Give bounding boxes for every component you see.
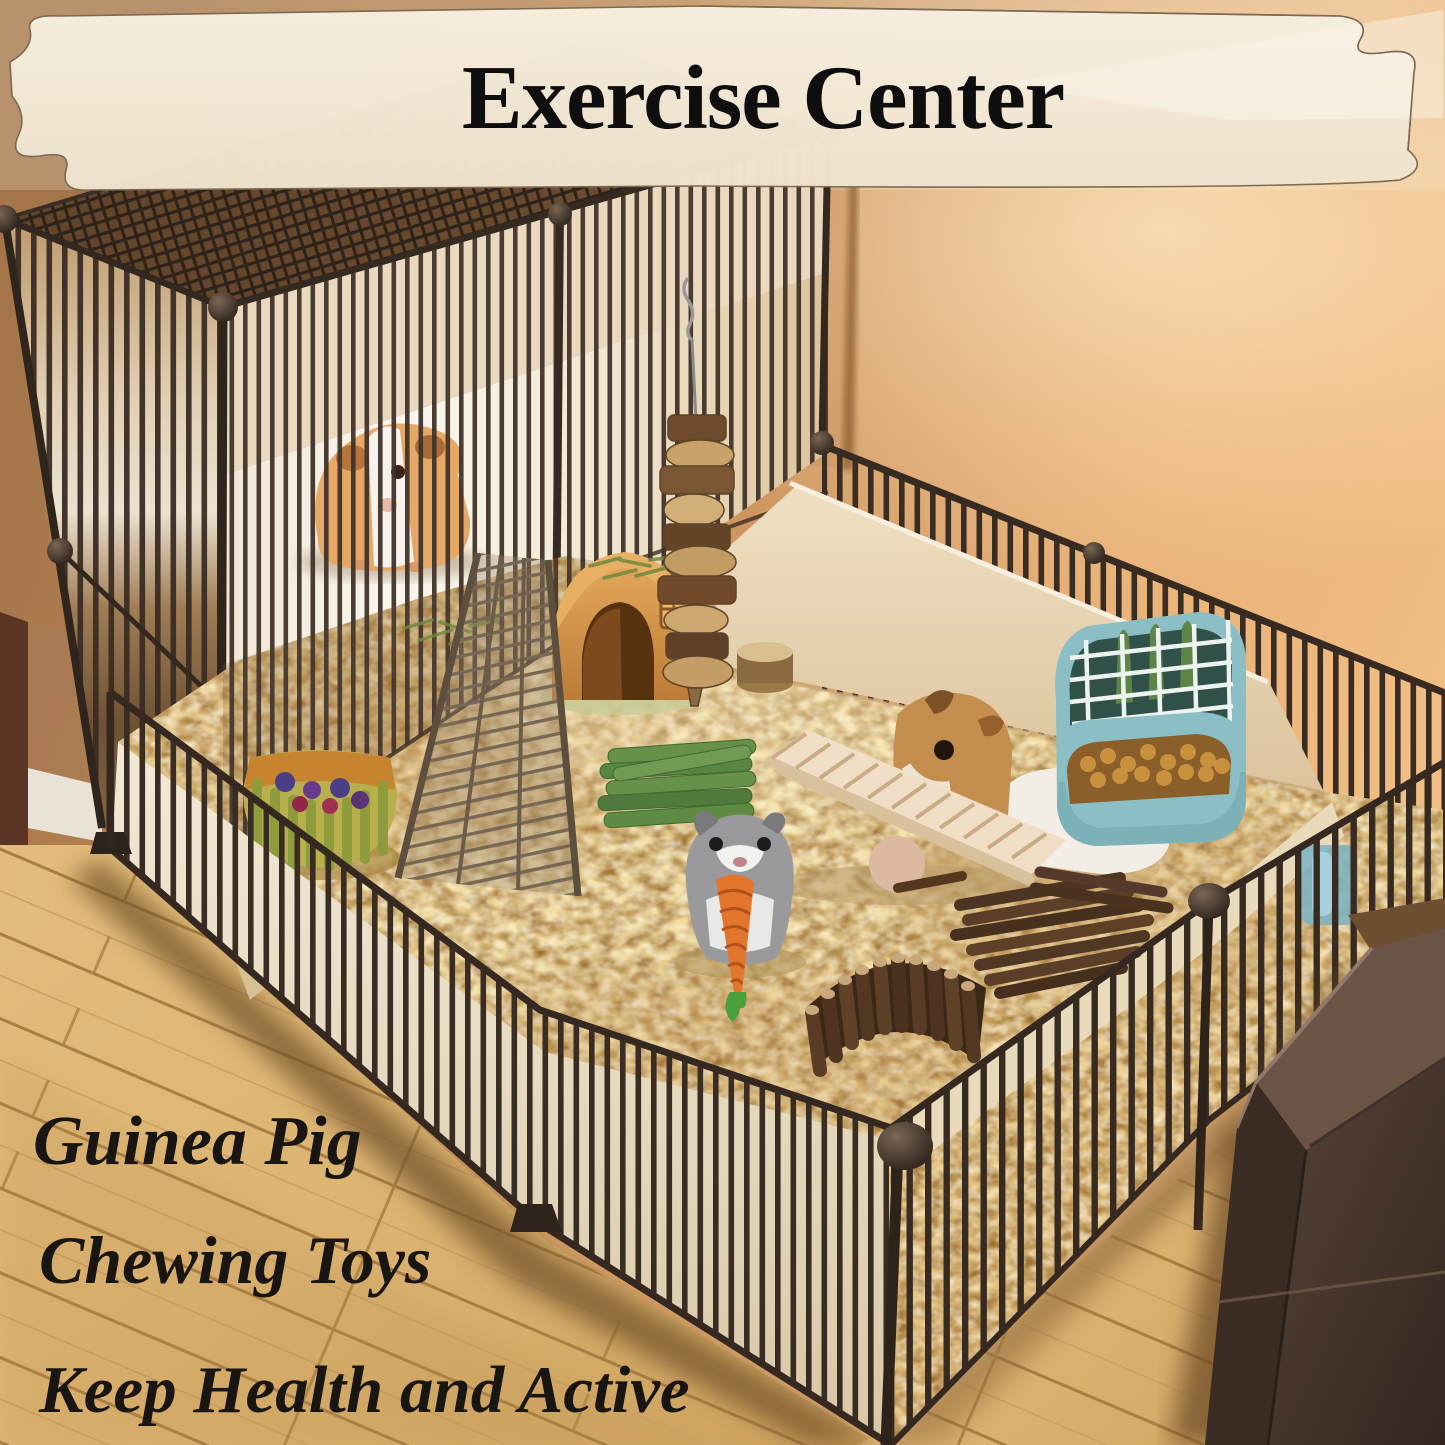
svg-text:Exercise Center: Exercise Center (462, 47, 1064, 148)
svg-text:Keep Health and Active: Keep Health and Active (38, 1353, 690, 1427)
svg-text:Guinea Pig: Guinea Pig (33, 1103, 362, 1180)
svg-text:Chewing Toys: Chewing Toys (39, 1222, 431, 1298)
